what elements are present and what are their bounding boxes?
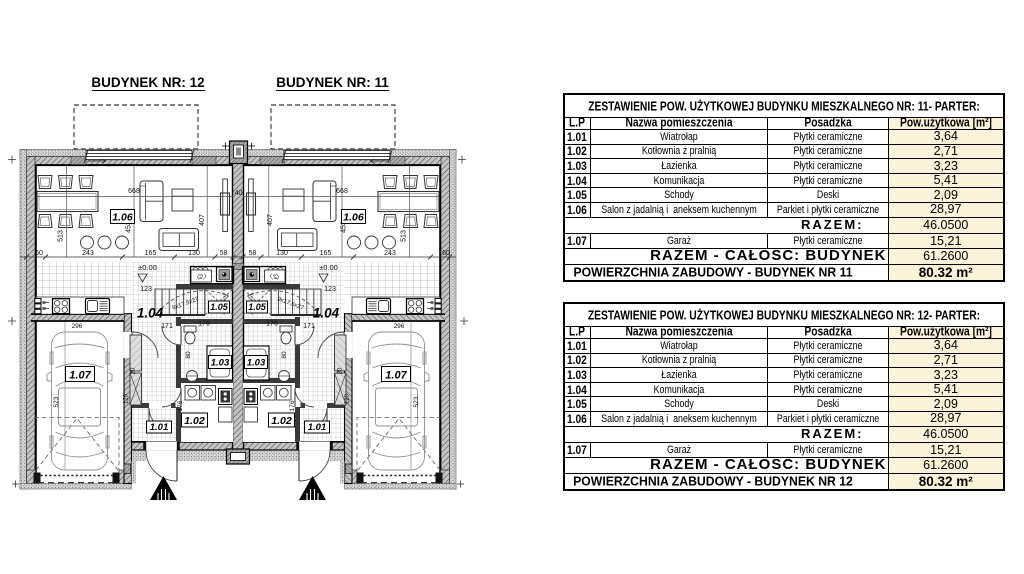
svg-text:1.06: 1.06 — [343, 211, 364, 223]
svg-text:40: 40 — [235, 190, 243, 197]
svg-text:1.01: 1.01 — [150, 422, 169, 433]
svg-text:〈2〉: 〈2〉 — [193, 273, 210, 281]
svg-text:20: 20 — [131, 367, 137, 374]
svg-text:1.03: 1.03 — [247, 357, 266, 368]
svg-text:165: 165 — [320, 250, 332, 257]
svg-text:1.06: 1.06 — [112, 211, 133, 223]
svg-text:1.01: 1.01 — [308, 422, 327, 433]
svg-text:20: 20 — [338, 367, 344, 374]
svg-text:171: 171 — [303, 323, 315, 330]
svg-text:80: 80 — [281, 351, 288, 359]
svg-text:1.02: 1.02 — [271, 415, 292, 427]
svg-text:58: 58 — [249, 250, 257, 257]
svg-text:120: 120 — [124, 393, 130, 404]
svg-text:130: 130 — [188, 250, 200, 257]
svg-text:±0.00: ±0.00 — [319, 263, 338, 272]
svg-text:513: 513 — [58, 230, 65, 242]
svg-text:1.02: 1.02 — [184, 415, 205, 427]
svg-text:120: 120 — [345, 393, 351, 404]
svg-text:668: 668 — [128, 188, 140, 195]
svg-text:243: 243 — [82, 250, 94, 257]
svg-text:BUDYNEK NR: 12: BUDYNEK NR: 12 — [91, 75, 204, 90]
svg-text:171: 171 — [161, 323, 173, 330]
svg-text:1.05: 1.05 — [248, 302, 267, 312]
svg-text:1.03: 1.03 — [211, 357, 230, 368]
svg-text:123: 123 — [140, 286, 152, 293]
svg-text:407: 407 — [199, 214, 206, 226]
svg-text:176: 176 — [289, 400, 296, 411]
svg-text:60: 60 — [442, 250, 450, 257]
svg-text:1.04: 1.04 — [137, 306, 164, 321]
svg-text:60: 60 — [35, 250, 43, 257]
svg-text:〈2〉: 〈2〉 — [267, 273, 284, 281]
svg-text:1.04: 1.04 — [313, 306, 340, 321]
svg-text:296: 296 — [394, 323, 405, 330]
svg-text:176: 176 — [177, 400, 184, 411]
svg-text:513: 513 — [401, 230, 408, 242]
svg-text:±0.00: ±0.00 — [138, 263, 157, 272]
svg-text:176: 176 — [266, 321, 278, 328]
svg-text:407: 407 — [267, 214, 274, 226]
svg-text:523: 523 — [413, 396, 420, 407]
svg-text:BUDYNEK NR: 11: BUDYNEK NR: 11 — [276, 75, 389, 90]
svg-text:80: 80 — [185, 351, 192, 359]
svg-text:243: 243 — [384, 250, 396, 257]
svg-text:165: 165 — [145, 250, 157, 257]
svg-text:523: 523 — [53, 396, 60, 407]
svg-text:1.05: 1.05 — [210, 302, 229, 312]
svg-text:58: 58 — [220, 250, 228, 257]
svg-text:176: 176 — [198, 321, 210, 328]
svg-text:668: 668 — [336, 188, 348, 195]
svg-text:130: 130 — [276, 250, 288, 257]
svg-text:1.07: 1.07 — [69, 369, 91, 381]
svg-text:296: 296 — [72, 323, 83, 330]
svg-text:1.07: 1.07 — [385, 369, 407, 381]
svg-text:123: 123 — [324, 286, 336, 293]
